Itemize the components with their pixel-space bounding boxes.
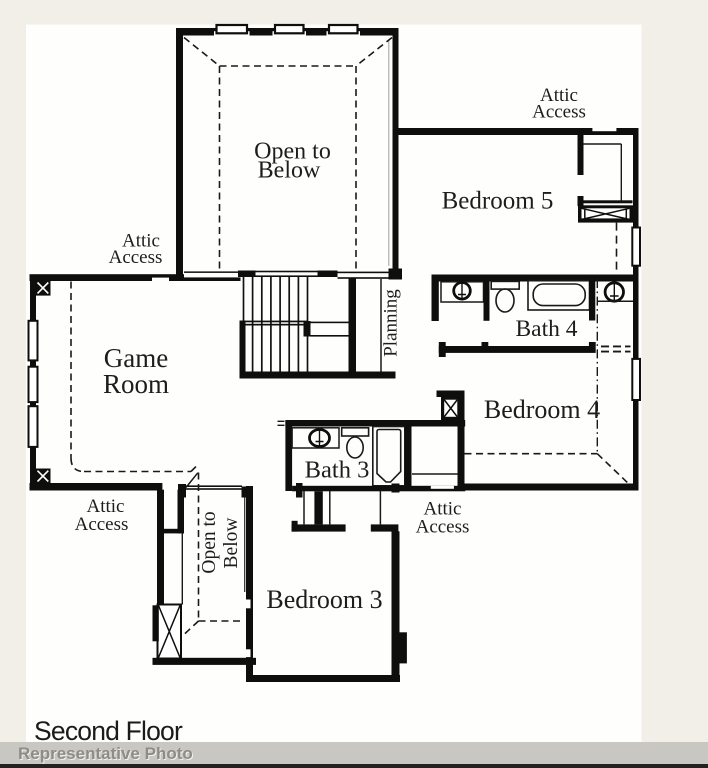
svg-text:Access: Access bbox=[532, 102, 586, 123]
svg-text:Bedroom 3: Bedroom 3 bbox=[266, 585, 382, 614]
svg-text:Planning: Planning bbox=[380, 289, 401, 357]
svg-text:Bedroom 5: Bedroom 5 bbox=[442, 188, 554, 215]
svg-text:Open to: Open to bbox=[199, 511, 220, 573]
svg-text:Second Floor: Second Floor bbox=[34, 716, 183, 746]
svg-text:Access: Access bbox=[75, 514, 129, 535]
svg-text:Access: Access bbox=[416, 517, 470, 538]
svg-text:Below: Below bbox=[258, 158, 321, 184]
svg-text:Bath 4: Bath 4 bbox=[515, 316, 577, 342]
svg-text:Bath 3: Bath 3 bbox=[305, 457, 370, 484]
svg-text:Representative Photo: Representative Photo bbox=[18, 744, 193, 763]
svg-text:Below: Below bbox=[221, 518, 242, 569]
svg-text:Access: Access bbox=[109, 247, 163, 268]
svg-text:Bedroom 4: Bedroom 4 bbox=[484, 395, 600, 424]
svg-text:Room: Room bbox=[103, 369, 169, 399]
